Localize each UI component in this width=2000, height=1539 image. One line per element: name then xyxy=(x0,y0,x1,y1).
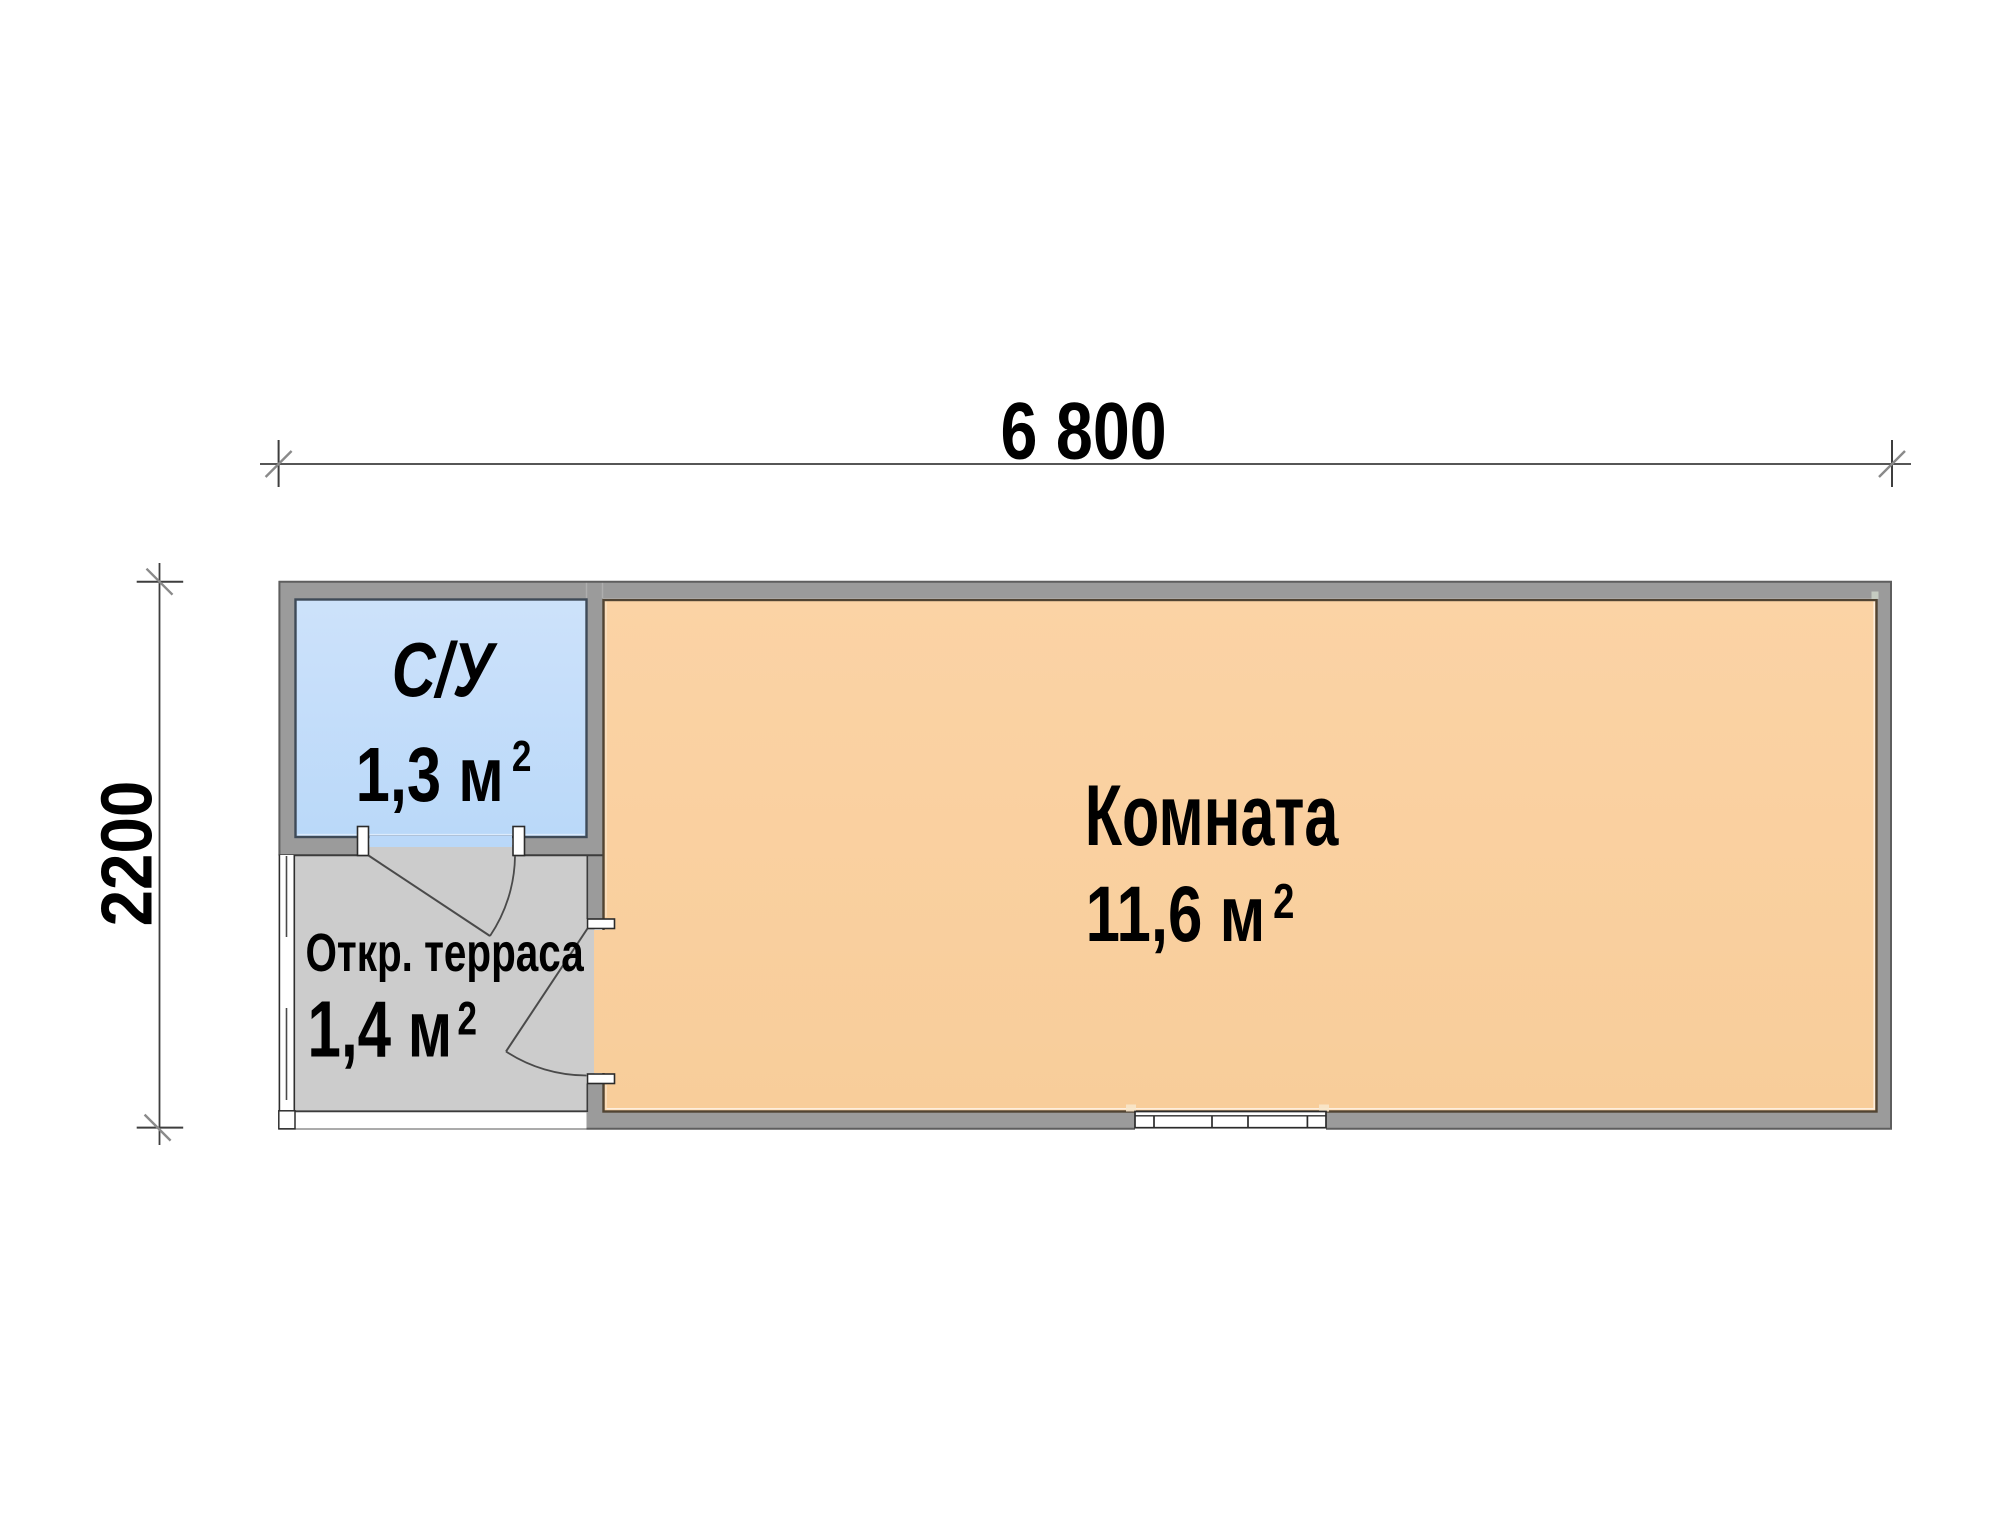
svg-text:11,6 м2: 11,6 м2 xyxy=(1086,871,1295,959)
svg-text:1,4 м2: 1,4 м2 xyxy=(308,984,478,1073)
svg-text:6 800: 6 800 xyxy=(1001,385,1167,476)
svg-text:Комната: Комната xyxy=(1085,767,1339,864)
svg-text:С/У: С/У xyxy=(392,627,498,714)
svg-text:Откр. терраса: Откр. терраса xyxy=(305,924,584,984)
svg-text:2200: 2200 xyxy=(87,781,168,927)
